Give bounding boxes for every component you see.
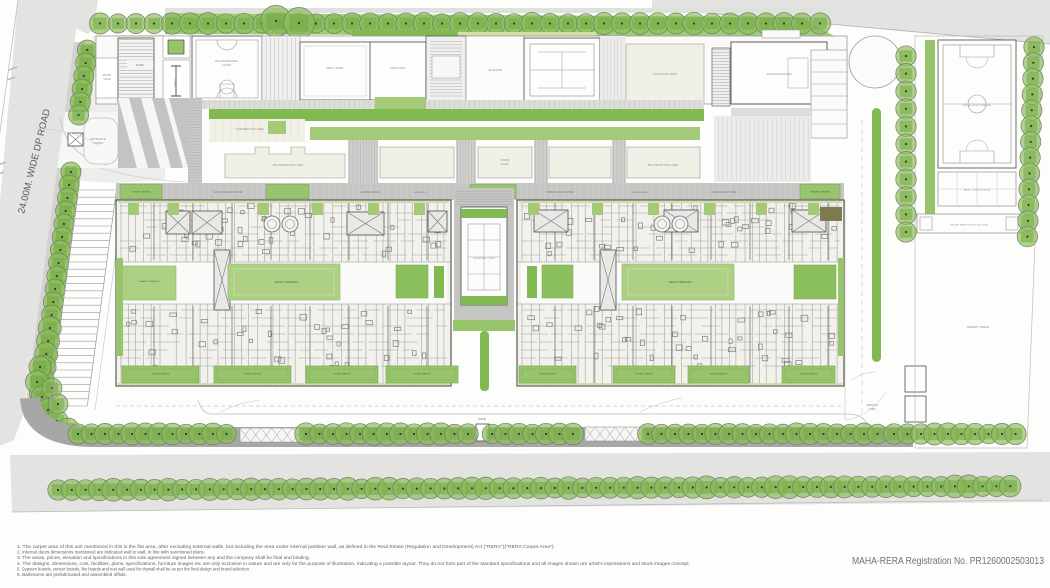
svg-text:PRIVATE GARDEN: PRIVATE GARDEN	[413, 373, 431, 376]
svg-text:TENANT TERRACES: TENANT TERRACES	[138, 280, 160, 283]
svg-text:PRIVATE GARDEN: PRIVATE GARDEN	[539, 373, 557, 376]
svg-text:PRIVATE GARDEN: PRIVATE GARDEN	[800, 373, 818, 376]
svg-text:PIANO: PIANO	[174, 79, 177, 87]
svg-text:AMENITY SPACE: AMENITY SPACE	[967, 325, 990, 329]
svg-text:TENANT TERRACES: TENANT TERRACES	[668, 281, 692, 284]
svg-text:PORTAL: PORTAL	[93, 141, 104, 145]
svg-text:PRIVATE GARDEN: PRIVATE GARDEN	[132, 191, 151, 194]
svg-text:5. Gypsum boards, veneer board: 5. Gypsum boards, veneer boards, fire bo…	[17, 566, 250, 571]
svg-text:CLUB HSE: CLUB HSE	[488, 68, 502, 72]
svg-text:MAHA-RERA Registration No. PR1: MAHA-RERA Registration No. PR12600025030…	[852, 556, 1044, 567]
svg-text:PRIVATE GARDEN: PRIVATE GARDEN	[244, 373, 262, 376]
svg-text:FUNCTION LAWN: FUNCTION LAWN	[653, 72, 677, 76]
svg-text:6. Bathrooms are prefabricated: 6. Bathrooms are prefabricated and assem…	[17, 572, 127, 577]
svg-text:PRIVATE GARDEN: PRIVATE GARDEN	[635, 373, 653, 376]
svg-text:SERVICE: SERVICE	[866, 403, 878, 407]
svg-text:DINING: DINING	[501, 159, 510, 162]
svg-text:FUTSAL COURT (260SQ.M): FUTSAL COURT (260SQ.M)	[963, 104, 991, 107]
svg-text:CHILDREN PLAY AREA: CHILDREN PLAY AREA	[236, 127, 264, 131]
svg-text:LOUNGE SPACE: LOUNGE SPACE	[361, 191, 380, 194]
svg-text:ENTRY: ENTRY	[103, 73, 112, 77]
svg-text:PLAZA: PLAZA	[501, 163, 509, 166]
svg-text:PRIVATE GARDEN: PRIVATE GARDEN	[710, 373, 728, 376]
svg-text:PRIVATE GARDEN: PRIVATE GARDEN	[811, 191, 830, 194]
svg-text:TENANT TERRACES: TENANT TERRACES	[274, 281, 298, 284]
svg-text:ADULT POOL: ADULT POOL	[326, 66, 344, 70]
svg-text:RAMP: RAMP	[136, 63, 144, 67]
svg-text:KIDS HANGOUT ZONE: KIDS HANGOUT ZONE	[711, 191, 737, 194]
svg-text:GAMING PRMS: GAMING PRMS	[632, 191, 648, 194]
svg-text:ACTIVE HANGOUT ZONE: ACTIVE HANGOUT ZONE	[214, 191, 243, 194]
svg-text:3. The areas, prices, elevatio: 3. The areas, prices, elevation and spec…	[17, 555, 310, 560]
svg-text:WORK HANGOUT ZONE: WORK HANGOUT ZONE	[546, 191, 574, 194]
svg-text:HALF BASKETBALL: HALF BASKETBALL	[215, 59, 239, 63]
svg-text:KID'S POOL: KID'S POOL	[390, 66, 406, 70]
svg-text:GATE: GATE	[478, 417, 486, 421]
svg-text:MULTIFUNCTION LAWN: MULTIFUNCTION LAWN	[273, 163, 303, 167]
svg-text:4. The designs, dimensions, co: 4. The designs, dimensions, cost, facili…	[17, 561, 690, 566]
svg-text:PRIVATE GARDEN: PRIVATE GARDEN	[333, 373, 351, 376]
svg-text:PADEL COURT (200SQ.M): PADEL COURT (200SQ.M)	[964, 189, 991, 192]
svg-text:PRIVATE GARDEN: PRIVATE GARDEN	[152, 373, 170, 376]
svg-text:2. Internal doors dimensions m: 2. Internal doors dimensions mentioned a…	[17, 550, 205, 555]
svg-text:GATE: GATE	[104, 77, 111, 81]
svg-text:WORK BKL: WORK BKL	[414, 192, 426, 194]
svg-text:CRICKET PRACTICE NET (100 SQ.M: CRICKET PRACTICE NET (100 SQ.M)	[950, 224, 988, 227]
svg-text:COURT: COURT	[222, 63, 232, 67]
svg-text:PICKLE BALL COURT: PICKLE BALL COURT	[473, 257, 496, 260]
svg-text:1. The carpet area of this uni: 1. The carpet area of this unit mentione…	[17, 544, 555, 549]
svg-text:MULTIFUNCTION LAWN: MULTIFUNCTION LAWN	[648, 163, 678, 167]
